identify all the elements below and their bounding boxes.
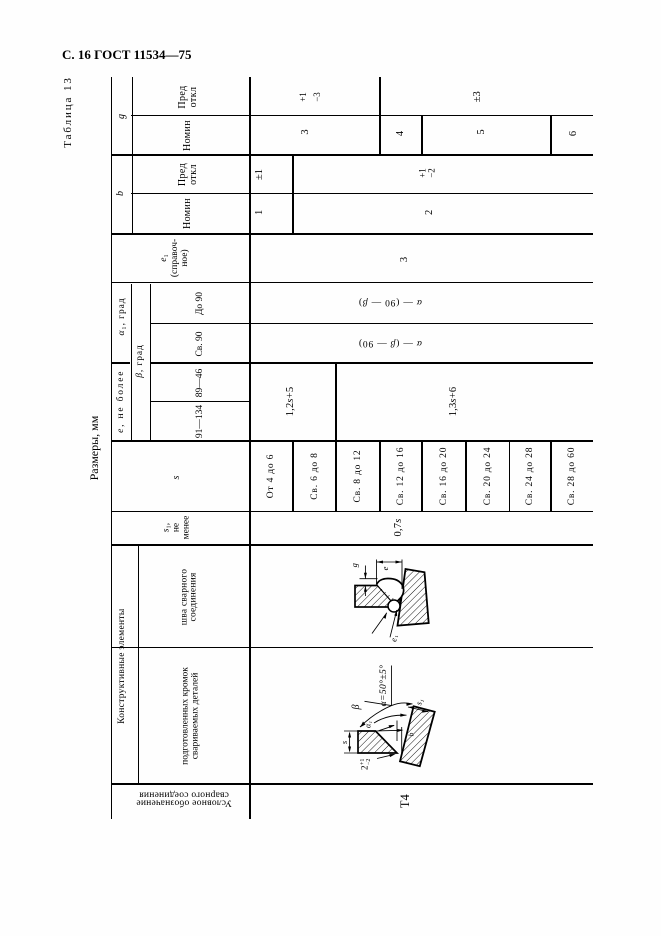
svg-text:e₁: e₁ bbox=[389, 635, 399, 642]
svg-text:α=50°±5°: α=50°±5° bbox=[378, 665, 389, 707]
svg-text:−2: −2 bbox=[366, 759, 372, 765]
svg-text:g: g bbox=[349, 563, 359, 567]
svg-text:2: 2 bbox=[360, 766, 370, 771]
svg-text:s: s bbox=[339, 740, 349, 744]
svg-text:β: β bbox=[351, 704, 362, 710]
svg-text:e: e bbox=[380, 566, 390, 570]
svg-text:α₁: α₁ bbox=[364, 721, 373, 728]
svg-text:s₁: s₁ bbox=[413, 698, 424, 706]
svg-text:b: b bbox=[407, 732, 416, 736]
